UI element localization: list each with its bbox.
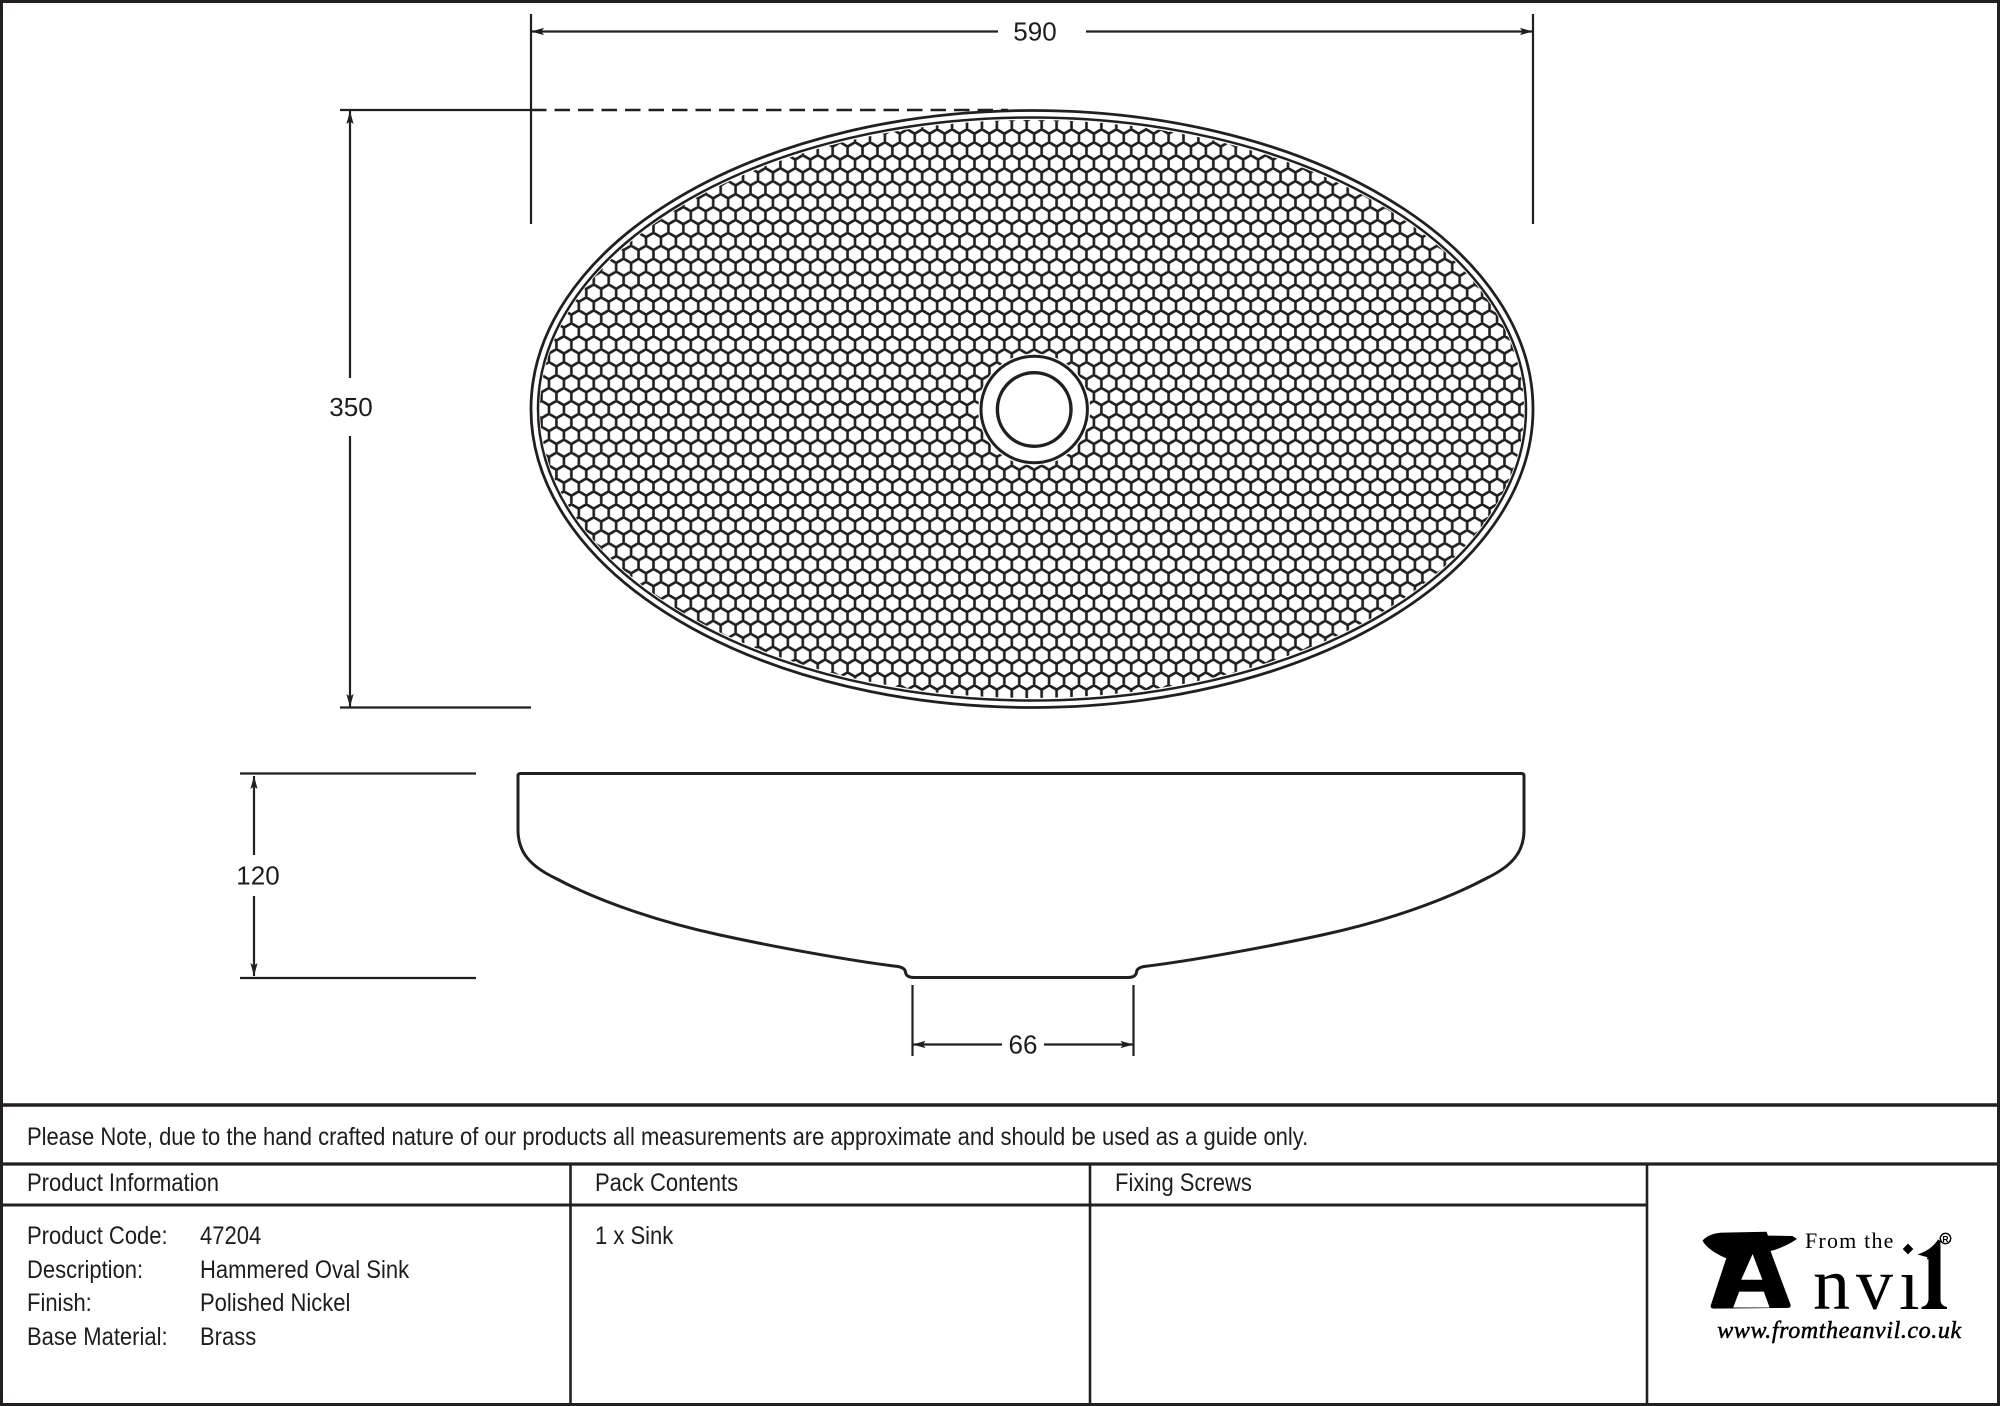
svg-text:120: 120	[236, 861, 279, 891]
svg-text:590: 590	[1013, 17, 1056, 47]
svg-text:R: R	[1942, 1234, 1948, 1244]
svg-text:66: 66	[1009, 1030, 1038, 1060]
svg-text:350: 350	[329, 392, 372, 422]
svg-text:www.fromtheanvil.co.uk: www.fromtheanvil.co.uk	[1717, 1318, 1962, 1344]
